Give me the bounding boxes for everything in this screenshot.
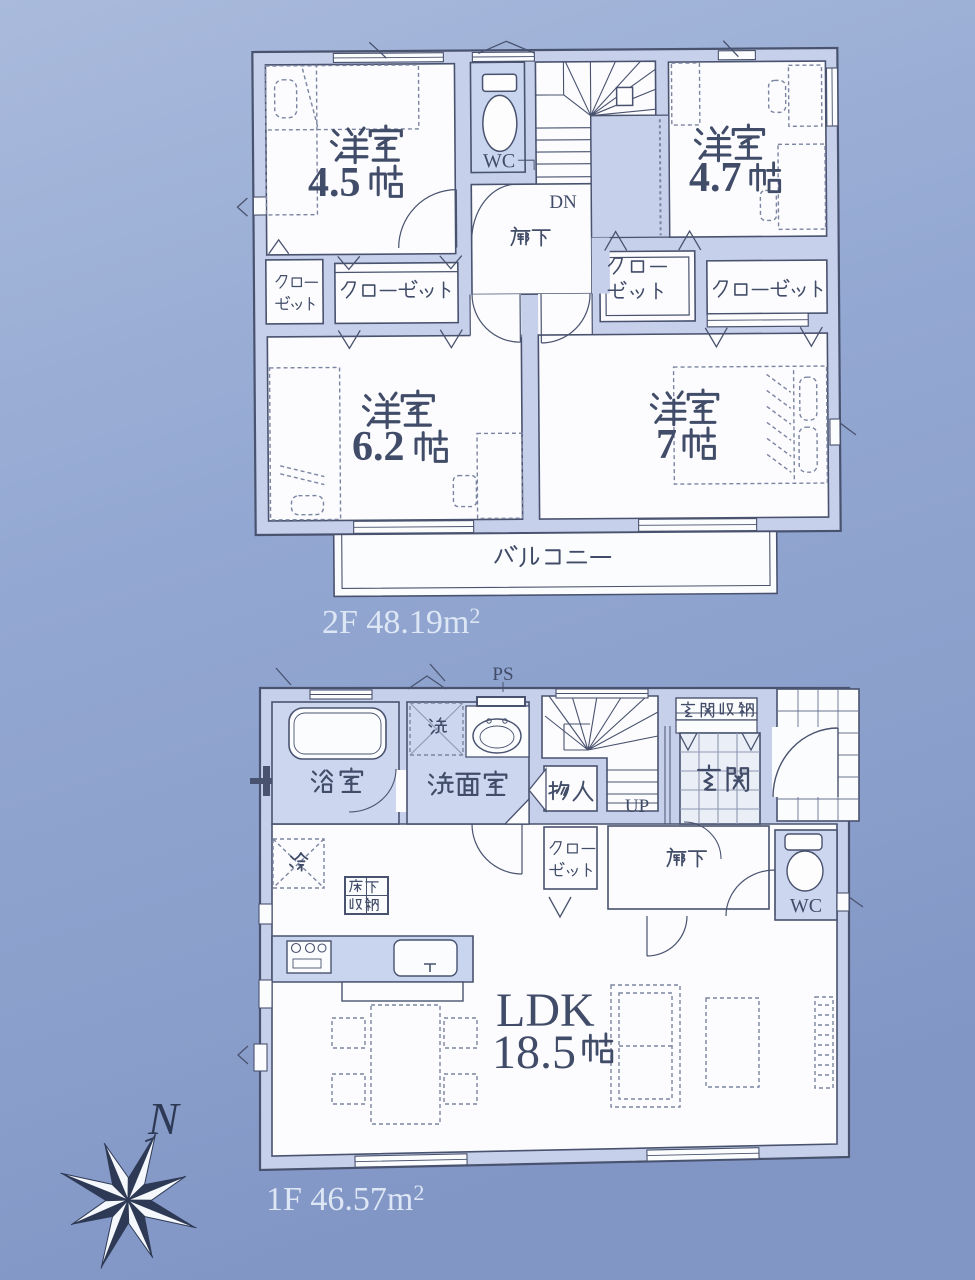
svg-text:7: 7: [656, 422, 677, 468]
svg-text:18.5: 18.5: [492, 1026, 576, 1079]
svg-text:DN: DN: [549, 192, 577, 213]
svg-text:UP: UP: [625, 796, 649, 817]
svg-text:2F 48.19m2: 2F 48.19m2: [322, 603, 480, 641]
svg-text:4.7: 4.7: [689, 155, 742, 201]
svg-text:WC: WC: [790, 895, 822, 917]
svg-text:N: N: [147, 1093, 181, 1144]
svg-text:PS: PS: [492, 664, 513, 685]
svg-text:1F 46.57m2: 1F 46.57m2: [266, 1180, 424, 1218]
svg-text:6.2: 6.2: [352, 424, 405, 470]
svg-text:WC: WC: [483, 150, 515, 172]
svg-text:4.5: 4.5: [308, 160, 361, 206]
